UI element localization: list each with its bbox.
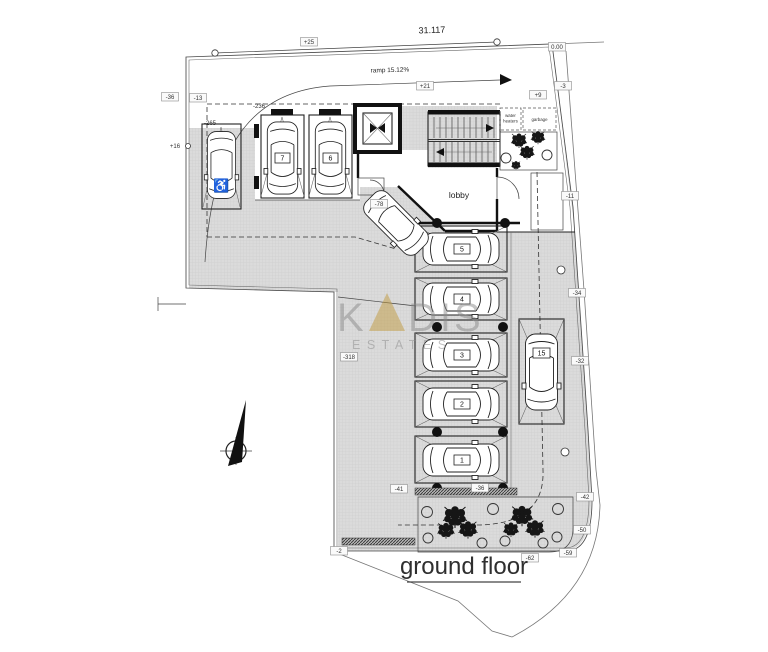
garbage-label: garbage: [531, 117, 548, 122]
level-label: -41: [395, 487, 404, 493]
water-heaters-label-2: heaters: [503, 119, 518, 124]
level-label: -265: [204, 121, 217, 127]
level-label: -50: [578, 528, 587, 534]
space-7-number: 7: [281, 156, 285, 163]
space-1-number: 1: [460, 458, 464, 465]
level-label: -2: [336, 549, 342, 555]
level-label: -318: [343, 355, 356, 361]
space-5-number: 5: [460, 247, 464, 254]
level-label: -13: [194, 96, 203, 102]
wheelchair-icon: ♿: [213, 178, 229, 193]
level-label: +21: [420, 84, 431, 90]
level-label: -36: [166, 95, 175, 101]
space-15-number: 15: [538, 351, 546, 358]
space-6-number: 6: [329, 156, 333, 163]
manhole-icon: [561, 448, 569, 456]
floor-plan-page: 31.117 ramp 15.12% 7 6 ♿: [0, 0, 768, 652]
level-label: 0.00: [551, 45, 563, 51]
watermark-estates: ESTATES: [352, 338, 453, 352]
level-label: -236: [253, 104, 266, 110]
north-arrow: [220, 400, 252, 466]
level-label: -3: [560, 84, 566, 90]
north-arrow-icon: [228, 400, 246, 466]
space-3-number: 3: [460, 353, 464, 360]
parking-space-2: 2: [415, 381, 507, 427]
ramp-label: ramp 15.12%: [371, 66, 410, 74]
manhole-icon: [557, 266, 565, 274]
dimension-text: 31.117: [418, 25, 445, 36]
watermark-letter-k: K: [337, 296, 364, 340]
water-heaters-label-1: water: [505, 113, 516, 118]
level-label: -34: [573, 291, 582, 297]
plan-title: ground floor: [400, 553, 528, 582]
level-label: +9: [535, 93, 543, 99]
dimension-end-circle: [212, 50, 218, 56]
lobby-label: lobby: [449, 190, 470, 200]
level-label: -11: [566, 194, 575, 200]
space-2-number: 2: [460, 402, 464, 409]
watermark-letters-dis: DIS: [408, 296, 484, 340]
parking-space-5: 5: [415, 226, 507, 272]
level-label: -32: [576, 359, 585, 365]
title-text: ground floor: [400, 553, 528, 580]
car-space-15: [522, 334, 561, 410]
level-label: -59: [564, 551, 573, 557]
elevator: [355, 105, 400, 152]
level-label: -36: [476, 486, 485, 492]
parking-space-15: 15: [519, 319, 564, 424]
overall-dimension: 31.117: [212, 25, 500, 57]
level-label: -78: [375, 202, 384, 208]
level-label: +25: [304, 40, 315, 46]
level-label: -42: [581, 495, 590, 501]
floor-plan-canvas: 31.117 ramp 15.12% 7 6 ♿: [0, 0, 768, 652]
dimension-end-circle: [494, 39, 500, 45]
ramp-arrowhead-icon: [500, 74, 512, 85]
level-label: +16: [170, 144, 181, 150]
